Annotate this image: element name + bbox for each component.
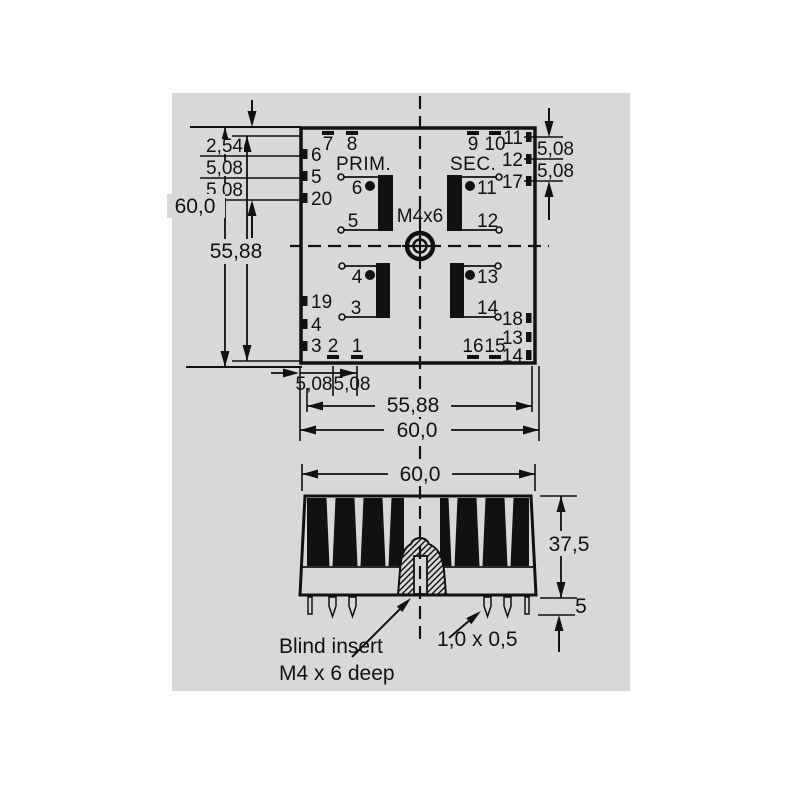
blind-insert-note-line2: M4 x 6 deep	[279, 662, 395, 685]
dim-label-height-outer: 60,0	[175, 195, 216, 218]
polarity-dot	[365, 181, 375, 191]
winding-pin-number: 13	[477, 267, 498, 288]
pin-pad	[302, 149, 308, 159]
winding-bar	[376, 263, 390, 318]
pin-number: 11	[503, 128, 523, 149]
dim-label-pin-length: 5	[575, 595, 587, 618]
dim-label-height-grid: 55,88	[210, 240, 263, 263]
dim-label-width-grid: 55,88	[387, 394, 440, 417]
winding-bar	[450, 263, 464, 318]
winding-pin-number: 11	[477, 178, 497, 199]
polarity-dot	[465, 270, 475, 280]
pin-pad	[526, 350, 532, 360]
pin-number: 6	[311, 145, 322, 166]
pin-number: 2	[328, 336, 339, 357]
blind-insert-note-line1: Blind insert	[279, 635, 383, 658]
pin-number: 3	[311, 336, 322, 357]
winding-pin-number: 12	[477, 211, 498, 232]
winding-bar	[378, 175, 393, 231]
terminal-circle	[338, 227, 344, 233]
technical-drawing-page: M4x6 PRIM. SEC. 6 5 11 12 4 3	[0, 0, 800, 800]
pin-number: 12	[502, 150, 523, 171]
winding-pin-number: 3	[351, 298, 362, 319]
pin-number: 8	[347, 134, 358, 155]
pin-number: 9	[468, 134, 479, 155]
dim-label-right-pitch-2: 5,08	[537, 161, 574, 182]
terminal-circle	[339, 314, 345, 320]
pin	[308, 597, 312, 614]
pin-pad	[302, 319, 308, 329]
winding-pin-number: 4	[352, 267, 363, 288]
pin-number: 16	[462, 336, 483, 357]
dim-label-width-outer: 60,0	[397, 419, 438, 442]
insert-thread-label: M4x6	[397, 206, 443, 227]
dim-label-body-height: 37,5	[549, 533, 590, 556]
terminal-circle	[338, 174, 344, 180]
winding-pin-number: 14	[477, 298, 499, 319]
pin-number: 20	[311, 189, 332, 210]
pin-number: 5	[311, 167, 322, 188]
pin-number: 18	[502, 309, 523, 330]
pin-number: 19	[311, 292, 332, 313]
transformer-dimension-drawing: M4x6 PRIM. SEC. 6 5 11 12 4 3	[0, 0, 800, 800]
pin-number: 17	[502, 172, 523, 193]
pin-number: 1	[352, 336, 363, 357]
winding-pin-number: 6	[352, 178, 363, 199]
dim-label-side-width: 60,0	[400, 463, 441, 486]
polarity-dot	[365, 270, 375, 280]
dim-label-row-pitch-1: 2,54	[206, 136, 243, 157]
primary-label: PRIM.	[336, 154, 391, 175]
pin	[525, 597, 529, 614]
terminal-circle	[339, 263, 345, 269]
dim-label-col-pitch-1: 5,08	[296, 374, 333, 395]
pin-pad	[302, 193, 308, 203]
pin-size-label: 1,0 x 0,5	[437, 628, 518, 651]
pin-number: 7	[323, 134, 334, 155]
winding-pin-number: 5	[348, 211, 359, 232]
polarity-dot	[465, 181, 475, 191]
dim-label-right-pitch-1: 5,08	[537, 139, 574, 160]
dim-label-col-pitch-2: 5,08	[334, 374, 371, 395]
pin-pad	[302, 296, 308, 306]
winding-bar	[447, 175, 462, 231]
pin-pad	[302, 171, 308, 181]
secondary-label: SEC.	[450, 154, 496, 175]
pin-pad	[526, 313, 532, 323]
pin-pad	[526, 332, 532, 342]
dim-label-row-pitch-2: 5,08	[206, 158, 243, 179]
pin-number: 4	[311, 315, 322, 336]
pin-pad	[302, 341, 308, 351]
pin-number: 15	[484, 336, 505, 357]
